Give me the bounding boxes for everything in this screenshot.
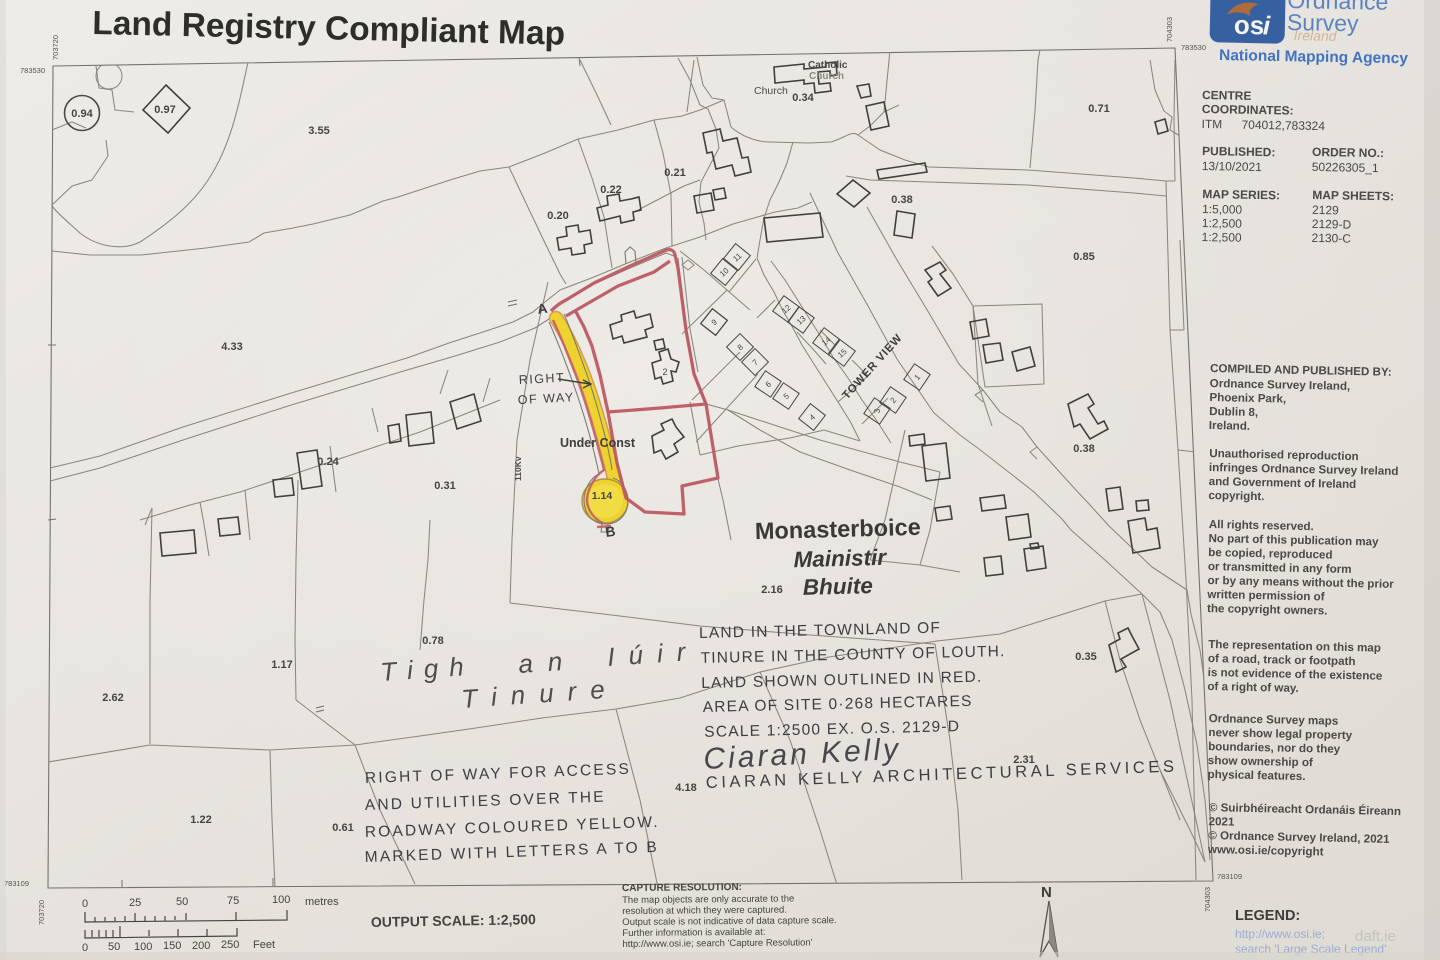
svg-text:http://www.osi.ie;: http://www.osi.ie; <box>1235 927 1325 941</box>
svg-text:COORDINATES:: COORDINATES: <box>1202 102 1294 118</box>
svg-text:ORDER NO.:: ORDER NO.: <box>1312 145 1384 160</box>
svg-text:4.33: 4.33 <box>221 341 242 353</box>
svg-text:ITM: ITM <box>1201 117 1222 131</box>
svg-text:50: 50 <box>176 896 188 908</box>
svg-text:http://www.osi.ie; search 'Cap: http://www.osi.ie; search 'Capture Resol… <box>622 937 812 950</box>
svg-text:Monasterboice: Monasterboice <box>755 514 921 544</box>
svg-text:CENTRE: CENTRE <box>1202 88 1252 103</box>
svg-text:N: N <box>1041 884 1052 901</box>
svg-text:2: 2 <box>662 367 667 377</box>
svg-text:783530: 783530 <box>20 66 45 75</box>
svg-text:2130-C: 2130-C <box>1311 231 1351 246</box>
svg-text:0.71: 0.71 <box>1088 103 1109 115</box>
svg-text:written permission of: written permission of <box>1206 588 1325 603</box>
svg-text:2021: 2021 <box>1208 815 1235 829</box>
svg-text:2.62: 2.62 <box>102 692 123 704</box>
svg-text:783109: 783109 <box>1217 872 1242 881</box>
svg-text:0.61: 0.61 <box>332 822 353 834</box>
svg-text:0.78: 0.78 <box>422 635 443 647</box>
svg-text:of a right of way.: of a right of way. <box>1207 680 1299 695</box>
svg-text:783109: 783109 <box>4 879 29 888</box>
svg-text:2129: 2129 <box>1312 203 1339 217</box>
svg-text:2129-D: 2129-D <box>1312 217 1352 232</box>
svg-text:0.34: 0.34 <box>792 92 814 104</box>
svg-text:Ireland: Ireland <box>1294 27 1338 44</box>
svg-text:1.14: 1.14 <box>592 490 613 502</box>
svg-text:3.55: 3.55 <box>308 125 329 137</box>
svg-text:2.16: 2.16 <box>761 584 782 596</box>
svg-text:3: 3 <box>873 408 882 413</box>
svg-text:copyright.: copyright. <box>1208 489 1264 503</box>
svg-text:0.94: 0.94 <box>71 108 93 120</box>
svg-text:50: 50 <box>108 941 120 953</box>
svg-text:MAP SHEETS:: MAP SHEETS: <box>1312 188 1394 203</box>
svg-text:CAPTURE RESOLUTION:: CAPTURE RESOLUTION: <box>622 882 742 894</box>
svg-text:0.22: 0.22 <box>600 184 621 196</box>
svg-text:704303: 704303 <box>1165 17 1174 42</box>
svg-text:Mainistir: Mainistir <box>793 545 887 572</box>
svg-text:show ownership of: show ownership of <box>1208 754 1313 769</box>
svg-text:783530: 783530 <box>1181 43 1206 52</box>
svg-text:0.24: 0.24 <box>317 456 339 468</box>
svg-text:Bhuite: Bhuite <box>802 573 873 600</box>
svg-text:704303: 704303 <box>1203 887 1212 912</box>
svg-text:LEGEND:: LEGEND: <box>1235 908 1300 924</box>
svg-text:150: 150 <box>163 940 181 952</box>
svg-text:0: 0 <box>82 898 88 910</box>
svg-text:703720: 703720 <box>51 35 60 60</box>
svg-text:250: 250 <box>221 939 239 951</box>
svg-text:Feet: Feet <box>253 939 275 951</box>
svg-text:Ordnance Survey maps: Ordnance Survey maps <box>1209 712 1339 728</box>
svg-text:100: 100 <box>272 894 290 906</box>
svg-text:0.97: 0.97 <box>154 104 175 116</box>
svg-text:be copied, reproduced: be copied, reproduced <box>1208 546 1333 562</box>
svg-text:physical features.: physical features. <box>1207 768 1305 783</box>
svg-text:an: an <box>517 645 578 679</box>
svg-text:0.38: 0.38 <box>1073 443 1094 455</box>
svg-text:0.31: 0.31 <box>434 480 455 492</box>
svg-text:0.38: 0.38 <box>891 194 912 206</box>
svg-text:1:2,500: 1:2,500 <box>1202 216 1243 231</box>
svg-text:Iúir: Iúir <box>606 636 700 672</box>
svg-text:Church: Church <box>754 85 788 97</box>
svg-text:200: 200 <box>192 940 210 952</box>
svg-text:PUBLISHED:: PUBLISHED: <box>1202 144 1276 159</box>
svg-text:13/10/2021: 13/10/2021 <box>1202 159 1263 174</box>
svg-text:Church: Church <box>809 71 844 82</box>
svg-text:the copyright owners.: the copyright owners. <box>1207 602 1328 618</box>
svg-text:Dublin 8,: Dublin 8, <box>1209 405 1258 419</box>
svg-text:National Mapping Agency: National Mapping Agency <box>1219 47 1409 67</box>
svg-text:MAP SERIES:: MAP SERIES: <box>1202 187 1280 202</box>
svg-text:0.21: 0.21 <box>664 167 685 179</box>
svg-text:1.17: 1.17 <box>271 659 292 671</box>
svg-text:703720: 703720 <box>37 900 46 925</box>
svg-text:110Kv: 110Kv <box>513 456 523 481</box>
svg-text:1:2,500: 1:2,500 <box>1201 230 1242 245</box>
svg-text:25: 25 <box>129 897 141 909</box>
svg-text:Catholic: Catholic <box>808 60 848 71</box>
svg-text:OUTPUT SCALE: 1:2,500: OUTPUT SCALE: 1:2,500 <box>371 911 536 930</box>
svg-text:0.35: 0.35 <box>1075 651 1096 663</box>
svg-text:metres: metres <box>305 896 339 908</box>
svg-text:Phoenix Park,: Phoenix Park, <box>1209 391 1286 406</box>
svg-text:704012,783324: 704012,783324 <box>1241 118 1325 133</box>
svg-text:1.22: 1.22 <box>190 814 211 826</box>
svg-text:daft.ie: daft.ie <box>1355 928 1396 945</box>
svg-text:Under Const: Under Const <box>560 436 636 450</box>
svg-text:50226305_1: 50226305_1 <box>1312 160 1379 175</box>
svg-text:0.85: 0.85 <box>1073 251 1094 263</box>
svg-text:boundaries, nor do they: boundaries, nor do they <box>1208 740 1341 756</box>
svg-text:100: 100 <box>134 941 152 953</box>
svg-text:OF WAY: OF WAY <box>517 390 575 407</box>
svg-text:www.osi.ie/copyright: www.osi.ie/copyright <box>1207 843 1324 858</box>
svg-text:All rights reserved.: All rights reserved. <box>1209 518 1314 533</box>
svg-text:0.20: 0.20 <box>547 210 568 222</box>
svg-text:75: 75 <box>227 895 239 907</box>
svg-text:Ireland.: Ireland. <box>1209 419 1251 433</box>
svg-text:Output scale is not indicative: Output scale is not indicative of data c… <box>622 915 836 928</box>
svg-text:1:5,000: 1:5,000 <box>1202 202 1243 217</box>
svg-text:4.18: 4.18 <box>675 782 696 794</box>
